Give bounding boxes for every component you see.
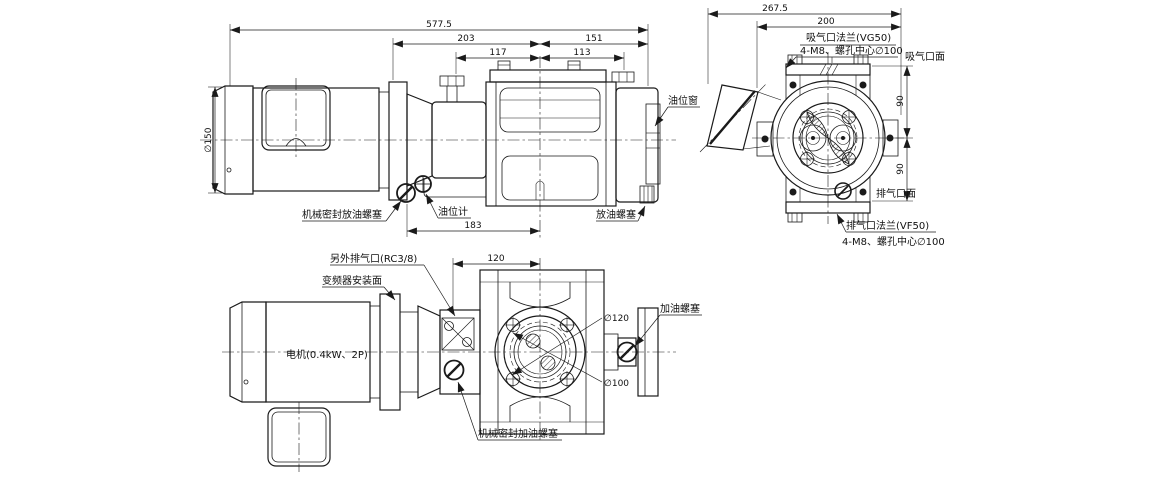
dim-end-overall: 267.5 bbox=[762, 4, 788, 14]
label-drain-plug: 放油螺塞 bbox=[596, 208, 636, 221]
pump-technical-drawing: 577.5 203 151 117 113 183 ∅150 机械密封放油螺塞 bbox=[0, 0, 1160, 480]
dim-117: 117 bbox=[489, 48, 506, 58]
label-exhaust-face: 排气口面 bbox=[876, 187, 916, 200]
label-inverter-face: 变频器安装面 bbox=[322, 274, 382, 287]
mech-seal-drain-plug-icon bbox=[397, 184, 415, 202]
side-motor bbox=[213, 78, 389, 194]
mech-seal-fill-plug-icon bbox=[445, 361, 464, 380]
dim-90-upper: 90 bbox=[896, 95, 906, 107]
side-view: 577.5 203 151 117 113 183 ∅150 机械密封放油螺塞 bbox=[200, 20, 700, 238]
dim-dia120: ∅120 bbox=[604, 314, 629, 324]
side-oil-tank bbox=[612, 72, 660, 203]
side-hex-bolt-gearbox bbox=[440, 76, 464, 102]
side-pump-body bbox=[486, 61, 616, 206]
aux-exhaust-port bbox=[442, 318, 474, 350]
label-exhaust-flange: 排气口法兰(VF50) bbox=[846, 219, 929, 232]
end-casing bbox=[757, 75, 898, 202]
plan-terminal-box bbox=[268, 402, 330, 472]
end-bolt-dots bbox=[762, 82, 894, 196]
plan-view: 120 ∅120 ∅100 另外排气口(RC3/8) 变频器安装面 电机(0.4… bbox=[222, 252, 702, 472]
label-fill-plug: 加油螺塞 bbox=[660, 302, 700, 315]
dim-120: 120 bbox=[487, 254, 504, 264]
dim-113: 113 bbox=[573, 48, 590, 58]
label-suction-bolts: 4-M8、螺孔中心∅100 bbox=[800, 44, 903, 57]
end-view: 267.5 200 90 90 吸气口法兰(VG50) 4-M8、螺孔中心∅10… bbox=[700, 4, 945, 248]
dim-end-200: 200 bbox=[817, 17, 834, 27]
plan-motor bbox=[230, 302, 380, 472]
dim-motor-diameter: ∅150 bbox=[204, 127, 214, 152]
side-terminal-box bbox=[262, 78, 330, 160]
plan-callouts: 另外排气口(RC3/8) 变频器安装面 电机(0.4kW、2P) 机械密封加油螺… bbox=[286, 252, 702, 440]
label-mech-seal-fill: 机械密封加油螺塞 bbox=[478, 427, 558, 440]
dim-183: 183 bbox=[464, 221, 481, 231]
rotor-lobe-2 bbox=[541, 356, 555, 370]
label-exhaust-bolts: 4-M8、螺孔中心∅100 bbox=[842, 235, 945, 248]
label-oil-window: 油位窗 bbox=[668, 94, 698, 107]
dim-151: 151 bbox=[585, 34, 602, 44]
label-suction-face: 吸气口面 bbox=[905, 50, 945, 63]
side-hex-bolt-tank bbox=[612, 72, 634, 82]
label-oil-gauge: 油位计 bbox=[438, 205, 468, 218]
label-aux-exhaust: 另外排气口(RC3/8) bbox=[330, 252, 417, 265]
dim-203: 203 bbox=[457, 34, 474, 44]
side-dimensions: 577.5 203 151 117 113 183 ∅150 bbox=[204, 20, 648, 237]
side-adapter bbox=[389, 76, 486, 200]
drawing-canvas: 577.5 203 151 117 113 183 ∅150 机械密封放油螺塞 bbox=[0, 0, 1160, 480]
label-mech-seal-drain: 机械密封放油螺塞 bbox=[302, 208, 382, 221]
dim-overall-length: 577.5 bbox=[426, 20, 452, 30]
dim-90-lower: 90 bbox=[896, 163, 906, 175]
inverter-plate-tilted bbox=[707, 85, 781, 150]
label-suction-flange: 吸气口法兰(VG50) bbox=[806, 31, 891, 44]
oil-gauge-icon bbox=[415, 176, 431, 192]
side-drain-plug bbox=[640, 186, 654, 203]
dim-dia100: ∅100 bbox=[604, 379, 629, 389]
label-motor: 电机(0.4kW、2P) bbox=[286, 348, 368, 361]
